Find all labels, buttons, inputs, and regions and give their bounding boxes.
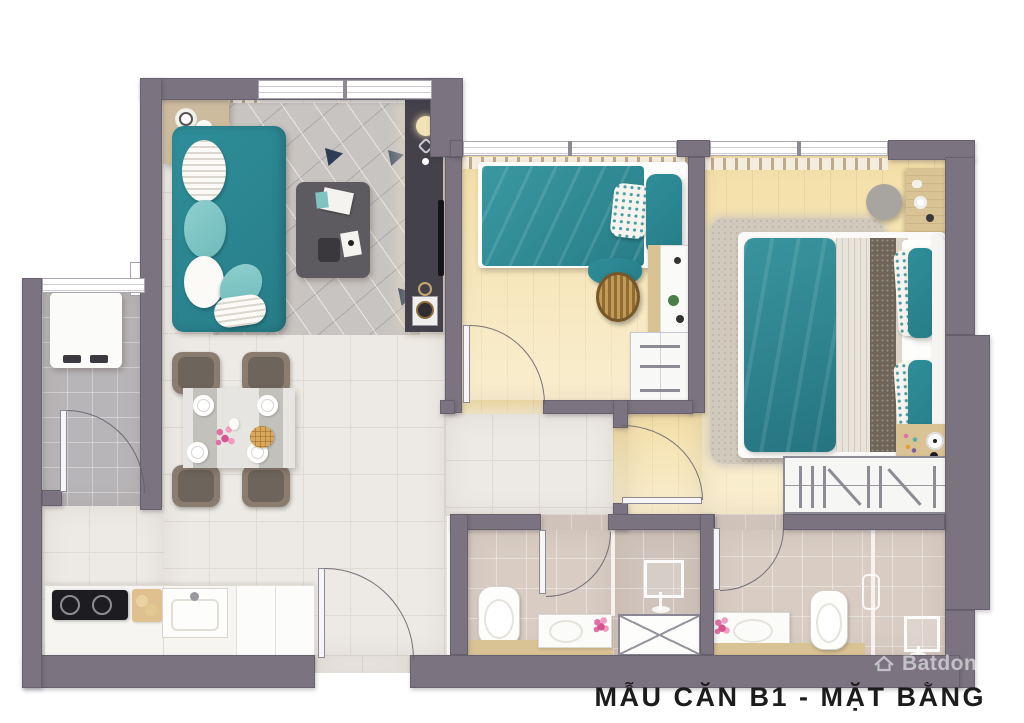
sink-basin [733, 619, 773, 643]
bed2-headboard [932, 234, 946, 456]
wall [140, 78, 162, 510]
induction-cooktop [52, 590, 128, 620]
bathroom1-door-threshold [541, 514, 608, 530]
bed2-runner [870, 238, 896, 452]
drawer-pull [640, 345, 680, 348]
vanity-flowers [592, 616, 610, 634]
shower-glass [611, 528, 615, 616]
plate [257, 395, 278, 416]
sink-basin [549, 620, 583, 643]
bed1-pillow [646, 174, 682, 254]
window-mullion [797, 141, 801, 156]
door-panel-entrance [318, 568, 325, 658]
kitchen-sink [162, 588, 228, 638]
door-panel-loggia [60, 410, 67, 492]
sofa-pillow [182, 140, 226, 202]
wall [783, 514, 945, 530]
sink-basin [171, 599, 219, 631]
desk [648, 245, 692, 333]
wall [450, 140, 463, 157]
faucet [190, 592, 199, 601]
clock-center [933, 439, 937, 443]
house-roof-icon [872, 652, 896, 676]
window-mullion [343, 80, 347, 99]
wall [700, 514, 714, 655]
nightstand-item [912, 180, 922, 188]
tray [318, 238, 340, 262]
bedroom2-curtain [705, 158, 888, 170]
wall [445, 157, 462, 413]
waffle-tray [250, 426, 274, 448]
sofa-pillow [184, 256, 224, 308]
wardrobe-shelf-line [785, 485, 946, 486]
plant [668, 295, 679, 306]
hanger-bar [879, 466, 882, 508]
drawer-pull [640, 365, 680, 368]
bed2-sheet [836, 238, 870, 452]
wall [608, 514, 715, 530]
washing-machine [50, 292, 122, 368]
pouf [866, 184, 902, 220]
bed1-pillow [609, 182, 650, 239]
hanger-diagonal [827, 468, 861, 506]
wall [688, 157, 705, 413]
wall [22, 278, 42, 688]
shower-head [644, 560, 684, 598]
washer-vent [63, 355, 81, 363]
toilet [810, 590, 848, 650]
watermark-text: Batdongsan [902, 652, 1024, 676]
service-shaft [618, 614, 701, 656]
sofa-pillow [184, 200, 226, 258]
shower-head [904, 616, 940, 652]
coffee-table [296, 182, 370, 278]
laundry-basket [596, 272, 640, 322]
cabinet-seam [275, 585, 276, 656]
shower-base [652, 606, 670, 613]
wall [945, 335, 990, 610]
bread [145, 604, 157, 616]
tv [438, 200, 444, 276]
hanger-bar [823, 466, 826, 508]
drawer-cabinet [630, 332, 690, 402]
nightstand-dish [914, 196, 927, 209]
door-panel-bathroom2 [713, 528, 720, 590]
plate [193, 395, 214, 416]
door-panel-bathroom1 [539, 530, 546, 594]
tall-cabinet [236, 585, 315, 656]
bed2-pillow [908, 248, 934, 338]
dining-chair [242, 465, 290, 507]
alarm-clock [926, 432, 944, 450]
bed2-duvet [744, 238, 836, 452]
hallway-floor [445, 413, 615, 516]
glass-handle [862, 574, 880, 610]
washer-vent [90, 355, 108, 363]
hanger-bar [799, 466, 802, 508]
spoon [348, 240, 354, 246]
wardrobe [783, 456, 948, 514]
window-mullion [568, 141, 572, 156]
burner [92, 595, 112, 615]
desk-item [674, 257, 681, 264]
decor-dot [422, 158, 429, 165]
wall [42, 490, 62, 506]
wall [450, 514, 468, 655]
hanger-bar [811, 466, 814, 508]
dining-chair [172, 465, 220, 507]
wall [440, 400, 455, 414]
drawer-pull [640, 389, 680, 392]
wall [945, 157, 975, 335]
door-panel-bedroom1 [463, 325, 470, 403]
hanger-bar [867, 466, 870, 508]
floor-plan-canvas: Batdongsan MẪU CĂN B1 - MẶT BẰNG [0, 0, 1024, 723]
hanger-bar [933, 466, 936, 508]
speaker-cone [416, 301, 434, 319]
desk-item [676, 315, 684, 323]
speaker [412, 296, 438, 326]
cutting-board [132, 589, 162, 622]
bedside-tray [896, 424, 948, 460]
plan-title: MẪU CĂN B1 - MẶT BẰNG [595, 682, 986, 713]
plate [187, 442, 208, 463]
wall [677, 140, 710, 157]
emblem [418, 282, 432, 296]
confetti [901, 430, 921, 454]
hanger-diagonal [887, 468, 921, 506]
nightstand-item [926, 214, 934, 222]
watermark: Batdongsan [872, 652, 1024, 676]
vanity-flowers [713, 615, 731, 637]
wall [613, 400, 628, 428]
creamer [229, 418, 239, 430]
wall [22, 655, 315, 688]
burner [60, 595, 80, 615]
napkin [315, 191, 329, 208]
loggia-window-sill [42, 278, 145, 293]
toilet [478, 586, 520, 646]
